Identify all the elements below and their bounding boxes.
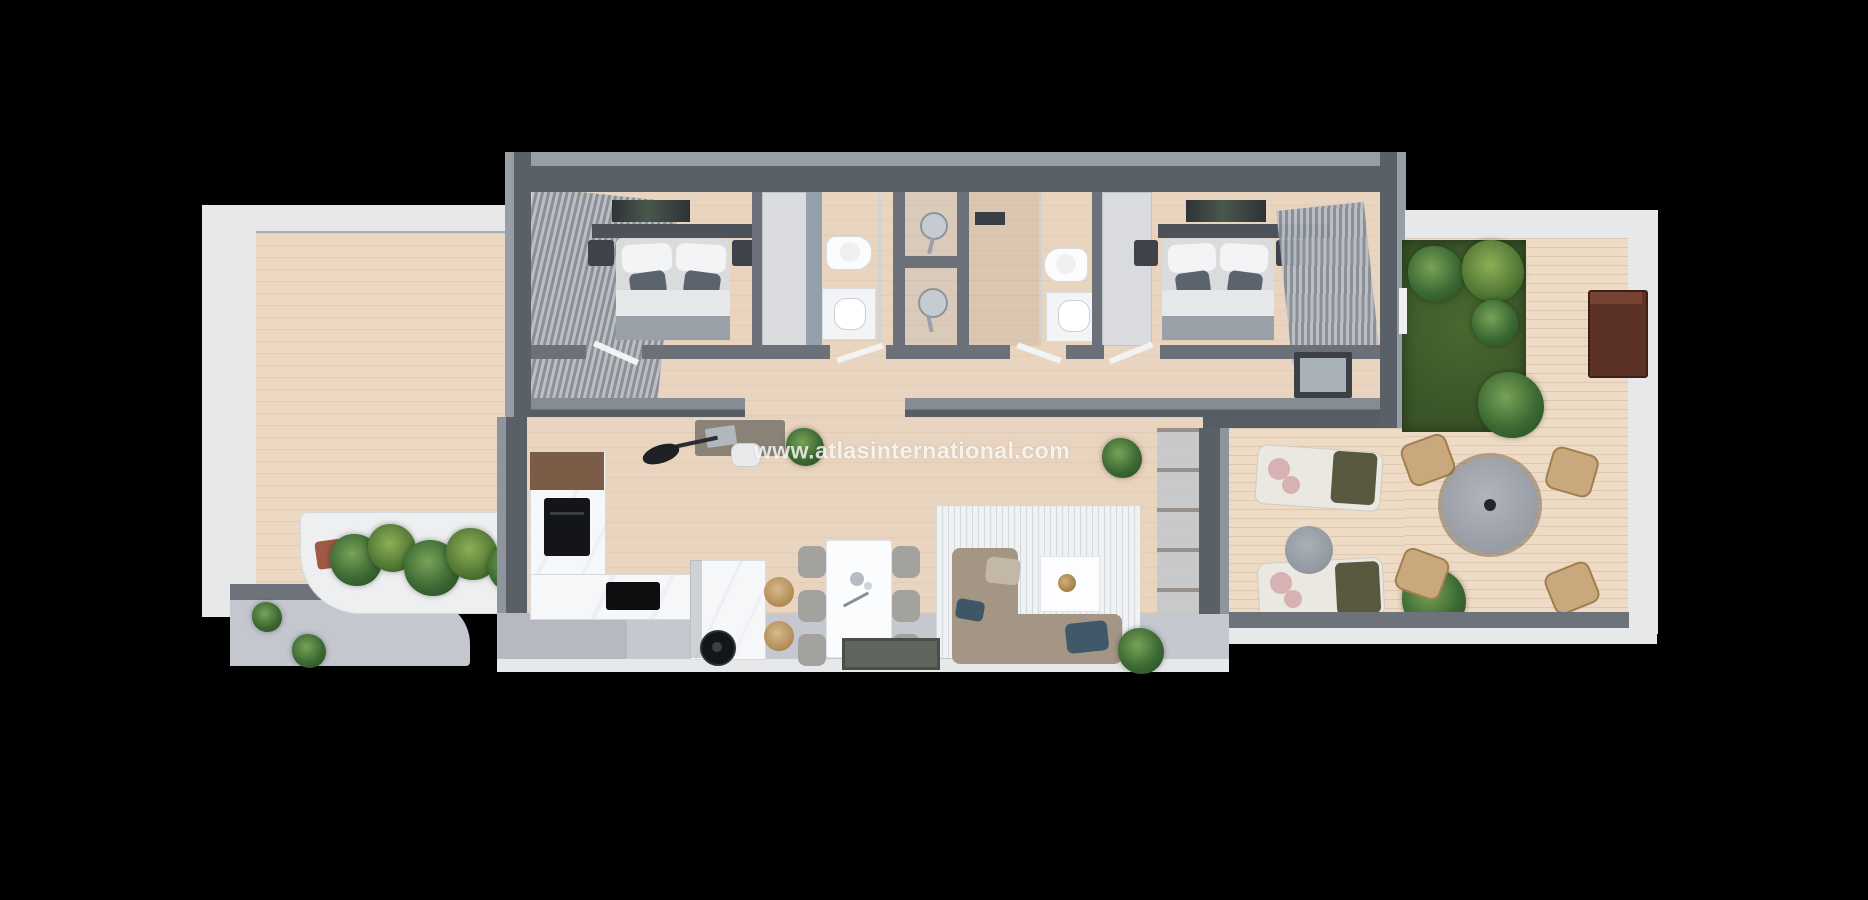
bedroom1-pillow-1 <box>621 243 672 274</box>
shower-head-top <box>920 212 948 240</box>
kitchen-wood-cabinet <box>530 452 604 490</box>
dining-table-bowl <box>850 572 864 586</box>
sofa-cushion-light <box>985 556 1022 585</box>
bedroom2-wall-art <box>1186 200 1266 222</box>
wall-bath2-wardrobe <box>1092 190 1102 346</box>
bedroom1-wall-art <box>612 200 690 222</box>
living-sliding-door <box>1157 428 1199 614</box>
grass-plant-4 <box>1478 372 1544 438</box>
bath2-shower-glass <box>1039 194 1042 342</box>
sun-lounger-2-blanket <box>1335 561 1382 615</box>
terrace-cabinet-top <box>1590 292 1642 304</box>
grass-plant-2 <box>1462 240 1524 302</box>
wall-bedroom1-bath1 <box>752 190 762 346</box>
bedroom1-nightstand-left <box>588 240 614 266</box>
page-body: { "canvas": {"w": 1868, "h": 900, "bg": … <box>0 0 1868 900</box>
bar-stool-2 <box>764 621 794 651</box>
bath2-basin <box>1058 300 1090 332</box>
bedroom1-foot-blanket <box>616 316 730 340</box>
coffee-table-decor <box>1058 574 1076 592</box>
bedroom2-duvet <box>1162 290 1274 318</box>
grass-planter-sliver <box>1399 288 1407 334</box>
dining-chair-right-1 <box>892 546 920 578</box>
kitchen-oven <box>544 498 590 556</box>
path-plant-1 <box>252 602 282 632</box>
sofa-cushion-dark-2 <box>1065 620 1110 654</box>
outdoor-table-center <box>1484 499 1496 511</box>
wall-showers-bath2 <box>957 190 969 346</box>
path-plant-2 <box>292 634 326 668</box>
bath1-toilet-lid <box>840 242 860 262</box>
doormat <box>842 638 940 670</box>
grass-plant-1 <box>1408 246 1464 302</box>
bedroom2-terrace-door-glass <box>1300 358 1346 392</box>
bar-stool-1 <box>764 577 794 607</box>
dining-chair-right-2 <box>892 590 920 622</box>
sun-lounger-1-blanket <box>1330 451 1378 506</box>
bedroom2-nightstand-left <box>1134 240 1158 266</box>
bedroom1-pillow-2 <box>675 243 726 274</box>
rooms-south-wall-1 <box>530 345 586 359</box>
right-terrace-wall-right <box>1628 210 1658 634</box>
bath2-wall-shelf <box>975 212 1005 225</box>
watermark-text: www.atlasinternational.com <box>754 438 1070 465</box>
wardrobe-1 <box>762 192 808 346</box>
bath1-tile-strip <box>806 190 822 346</box>
bath2-toilet-lid <box>1056 254 1076 274</box>
showers-divider-wall <box>905 256 957 268</box>
lower-balcony-shade <box>497 613 627 661</box>
rooms-south-wall-2 <box>642 345 830 359</box>
wall-bath1-showers <box>893 190 905 346</box>
shower-head-bottom <box>918 288 948 318</box>
floorplan-stage: www.atlasinternational.com <box>0 0 1868 900</box>
bedroom1-headboard-shelf <box>592 224 764 238</box>
right-terrace-wall-top <box>1405 210 1657 238</box>
dining-chair-left-3 <box>798 634 826 666</box>
building-west-wall <box>505 152 531 428</box>
sofa-side-plant <box>1118 628 1164 674</box>
living-east-wall <box>1199 428 1229 614</box>
bedroom2-foot-blanket <box>1162 316 1274 340</box>
rooms-south-wall-3 <box>886 345 1010 359</box>
bedroom1-duvet <box>616 290 730 318</box>
lounge-side-table <box>1285 526 1333 574</box>
rooms-south-wall-4 <box>1066 345 1104 359</box>
bath1-basin <box>834 298 866 330</box>
building-north-wall <box>505 152 1405 192</box>
right-terrace-south-white <box>1229 628 1657 644</box>
left-terrace-wall-left <box>202 205 258 617</box>
bedroom2-pillow-2 <box>1219 243 1268 273</box>
dining-table-cup <box>864 582 872 590</box>
sun-lounger-1-pillow-2 <box>1282 476 1300 494</box>
bedroom2-pillow-1 <box>1167 243 1216 273</box>
kitchen-oven-line <box>550 512 584 515</box>
kitchen-cooktop <box>606 582 660 610</box>
sun-lounger-2-pillow-2 <box>1284 590 1302 608</box>
robot-vacuum-center <box>712 642 722 652</box>
bedroom2-window-blind <box>1276 202 1380 364</box>
living-west-wall <box>497 417 527 613</box>
dining-chair-left-2 <box>798 590 826 622</box>
bath1-shower-glass <box>878 194 881 342</box>
grass-plant-3 <box>1472 300 1518 346</box>
dining-chair-left-1 <box>798 546 826 578</box>
wardrobe-2 <box>1102 192 1152 346</box>
hall-plant <box>1102 438 1142 478</box>
